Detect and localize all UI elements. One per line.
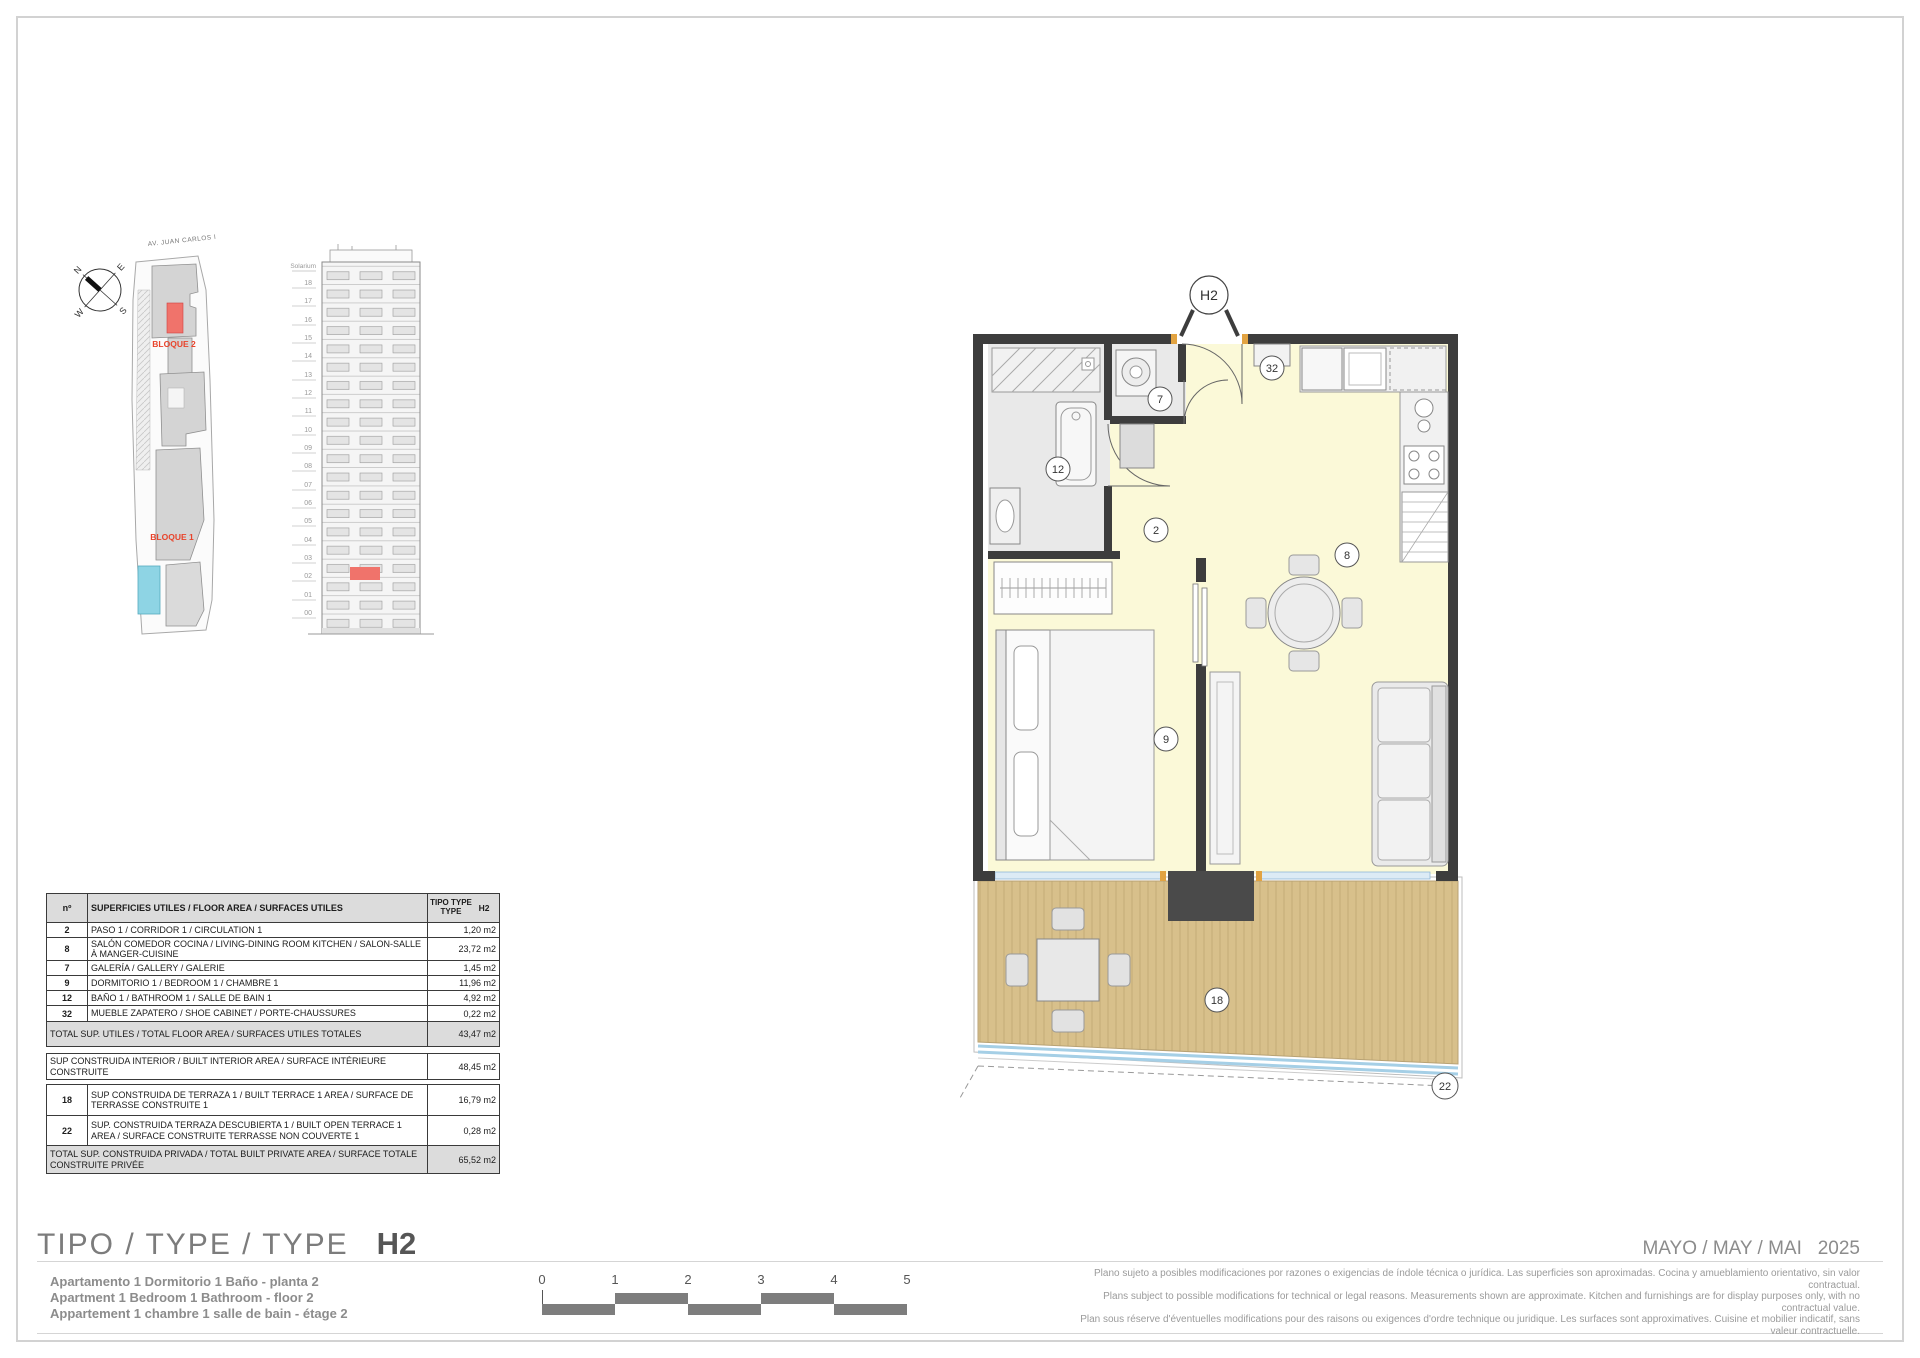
description-line-fr: Appartement 1 chambre 1 salle de bain - … [50,1306,348,1322]
svg-text:11: 11 [305,408,312,415]
room-no-terrace: 18 [1211,995,1223,1007]
terrace-pier [1168,871,1254,921]
solarium-label: Solarium [290,263,316,270]
tv-sideboard [1210,672,1240,864]
oven [1302,348,1342,390]
disclaimer-line-en: Plans subject to possible modifications … [1070,1291,1860,1314]
date-block: MAYO / MAY / MAI 2025 [1642,1238,1860,1260]
svg-text:05: 05 [304,518,312,525]
table-row: 9 DORMITORIO 1 / BEDROOM 1 / CHAMBRE 1 1… [47,975,499,990]
apartment-description: Apartamento 1 Dormitorio 1 Baño - planta… [50,1274,348,1322]
table-row: 7 GALERÍA / GALLERY / GALERIE 1,45 m2 [47,960,499,975]
table-row: 2 PASO 1 / CORRIDOR 1 / CIRCULATION 1 1,… [47,922,499,937]
type-header-value: H2 [472,903,496,913]
compass-n: N [72,264,84,276]
scale-zero-tick [542,1290,543,1304]
scale-segment [615,1293,688,1304]
dining-table [1268,577,1340,649]
svg-text:00: 00 [304,610,312,617]
legal-disclaimer: Plano sujeto a posibles modificaciones p… [1070,1268,1860,1337]
area-table: nº SUPERFICIES UTILES / FLOOR AREA / SUR… [46,893,500,1174]
pool [138,566,160,614]
unit-circle-label: H2 [1200,287,1218,303]
svg-text:16: 16 [304,317,312,324]
bloque2-label: BLOQUE 2 [152,339,196,349]
svg-text:15: 15 [304,335,312,342]
terrace-table-block: 18 SUP CONSTRUIDA DE TERRAZA 1 / BUILT T… [46,1084,500,1174]
room-no-living: 8 [1344,550,1350,562]
room-no-bathroom: 12 [1052,464,1064,476]
elevation-unit-highlight [350,567,380,580]
table-row: 18 SUP CONSTRUIDA DE TERRAZA 1 / BUILT T… [47,1085,499,1115]
scale-tick: 4 [830,1272,837,1287]
col-desc-header: SUPERFICIES UTILES / FLOOR AREA / SURFAC… [88,894,427,922]
svg-text:10: 10 [304,427,312,434]
scale-tick: 3 [757,1272,764,1287]
room-no-corridor: 2 [1153,525,1159,537]
street-label: AV. JUAN CARLOS I [147,234,216,248]
svg-text:18: 18 [304,280,312,287]
room-no-shoe-cabinet: 32 [1266,363,1278,375]
total-utiles-row: TOTAL SUP. UTILES / TOTAL FLOOR AREA / S… [47,1021,499,1046]
svg-text:14: 14 [304,353,312,360]
svg-text:13: 13 [304,372,312,379]
plan-sheet: N S W E AV. JUAN CARLOS I BLOQUE 2 BLOQU… [0,0,1920,1358]
scale-bar: 0 1 2 3 4 5 [542,1272,908,1318]
disclaimer-line-fr: Plan sous réserve d'éventuelles modifica… [1070,1314,1860,1337]
disclaimer-line-es: Plano sujeto a posibles modificaciones p… [1070,1268,1860,1291]
table-header: nº SUPERFICIES UTILES / FLOOR AREA / SUR… [47,894,499,922]
utiles-table: nº SUPERFICIES UTILES / FLOOR AREA / SUR… [46,893,500,1047]
fridge [1344,348,1386,390]
description-line-es: Apartamento 1 Dormitorio 1 Baño - planta… [50,1274,348,1290]
svg-text:02: 02 [304,573,312,580]
pillow [1014,646,1038,730]
cooktop [1404,446,1444,484]
col-no-header: nº [47,894,88,922]
date-label: MAYO / MAY / MAI [1642,1238,1801,1259]
scale-tick: 5 [903,1272,910,1287]
terrace-table [1037,939,1099,1001]
type-title-label: TIPO / TYPE / TYPE [37,1228,349,1262]
svg-text:08: 08 [304,463,312,470]
pillow [1014,752,1038,836]
kitchen-sink [1415,399,1433,417]
room-no-gallery: 7 [1157,394,1163,406]
site-plan: BLOQUE 2 BLOQUE 1 [132,256,214,634]
table-row: 8 SALÓN COMEDOR COCINA / LIVING-DINING R… [47,937,499,960]
svg-text:04: 04 [304,537,312,544]
scale-segment [834,1304,907,1315]
built-interior-row: SUP CONSTRUIDA INTERIOR / BUILT INTERIOR… [47,1054,499,1079]
date-year: 2025 [1818,1238,1860,1259]
table-row: 32 MUEBLE ZAPATERO / SHOE CABINET / PORT… [47,1005,499,1021]
svg-text:07: 07 [304,482,312,489]
interior-table: SUP CONSTRUIDA INTERIOR / BUILT INTERIOR… [46,1053,500,1080]
room-no-open-terrace: 22 [1439,1081,1451,1093]
floor-plan: H2 2 7 8 9 12 18 22 32 [955,270,1475,1110]
col-type-header: TIPO TYPE TYPE H2 [427,894,500,922]
sheet-title: TIPO / TYPE / TYPE H2 [37,1226,416,1262]
svg-text:12: 12 [304,390,312,397]
svg-text:09: 09 [304,445,312,452]
compass-s: S [117,305,128,316]
scale-segment [688,1304,761,1315]
unit-label: H2 [1181,276,1238,336]
bed-headboard [996,630,1006,860]
description-line-en: Apartment 1 Bedroom 1 Bathroom - floor 2 [50,1290,348,1306]
duct [1120,424,1154,468]
scale-segment [542,1304,615,1315]
svg-text:06: 06 [304,500,312,507]
scale-tick: 1 [611,1272,618,1287]
room-no-bedroom: 9 [1163,734,1169,746]
location-inset: N S W E AV. JUAN CARLOS I BLOQUE 2 BLOQU… [60,225,450,660]
svg-text:17: 17 [304,298,312,305]
type-title-value: H2 [377,1226,417,1262]
scale-tick: 0 [538,1272,545,1287]
svg-text:03: 03 [304,555,312,562]
compass-w: W [73,306,86,319]
bloque2-unit-highlight [167,303,183,333]
total-privada-row: TOTAL SUP. CONSTRUIDA PRIVADA / TOTAL BU… [47,1145,499,1173]
scale-tick: 2 [684,1272,691,1287]
table-row: 22 SUP. CONSTRUIDA TERRAZA DESCUBIERTA 1… [47,1115,499,1145]
type-header-label: TIPO TYPE TYPE [430,899,472,917]
table-row: 12 BAÑO 1 / BATHROOM 1 / SALLE DE BAIN 1… [47,990,499,1005]
bloque1-label: BLOQUE 1 [150,532,194,542]
svg-text:01: 01 [304,592,312,599]
scale-segment [761,1293,834,1304]
compass-e: E [115,261,126,272]
building-elevation: Solarium 18 17 16 15 14 13 12 11 10 09 0… [290,244,434,634]
